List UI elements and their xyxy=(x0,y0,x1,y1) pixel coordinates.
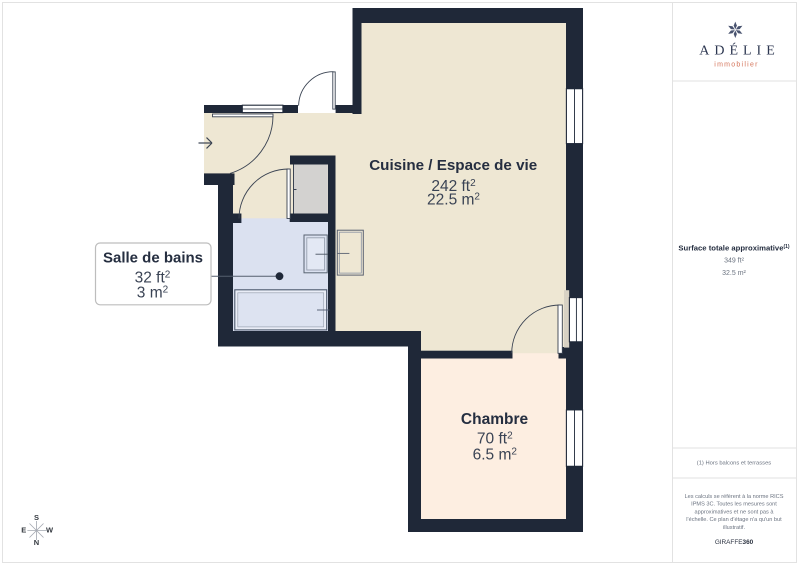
svg-text:Surface totale approximative(1: Surface totale approximative(1) xyxy=(678,244,790,253)
svg-text:S: S xyxy=(34,513,39,522)
svg-text:GIRAFFE360: GIRAFFE360 xyxy=(715,539,754,546)
svg-text:IPMS 3C. Toutes les mesures so: IPMS 3C. Toutes les mesures sont xyxy=(691,502,777,508)
svg-text:Cuisine / Espace de vie: Cuisine / Espace de vie xyxy=(369,157,537,174)
svg-text:22.5 m2: 22.5 m2 xyxy=(427,192,480,209)
svg-text:l'échelle. Ce plan d'étage n'a: l'échelle. Ce plan d'étage n'a qu'un but xyxy=(686,517,782,523)
svg-text:illustratif.: illustratif. xyxy=(723,525,746,531)
svg-text:Salle de bains: Salle de bains xyxy=(103,250,203,267)
svg-text:32.5 m²: 32.5 m² xyxy=(722,270,746,277)
svg-text:ADÉLIE: ADÉLIE xyxy=(699,42,780,59)
svg-text:W: W xyxy=(46,526,54,535)
svg-text:Chambre: Chambre xyxy=(461,411,529,428)
svg-text:N: N xyxy=(34,538,39,547)
svg-text:approximatives et ne sont pas: approximatives et ne sont pas à xyxy=(695,509,775,515)
svg-text:Les calculs se réfèrent à la n: Les calculs se réfèrent à la norme RICS xyxy=(685,494,784,500)
svg-text:immobilier: immobilier xyxy=(714,62,758,69)
svg-text:6.5 m2: 6.5 m2 xyxy=(473,447,518,464)
svg-text:E: E xyxy=(21,526,26,535)
svg-text:(1) Hors balcons et terrasses: (1) Hors balcons et terrasses xyxy=(697,461,772,467)
svg-text:349 ft²: 349 ft² xyxy=(724,258,745,265)
